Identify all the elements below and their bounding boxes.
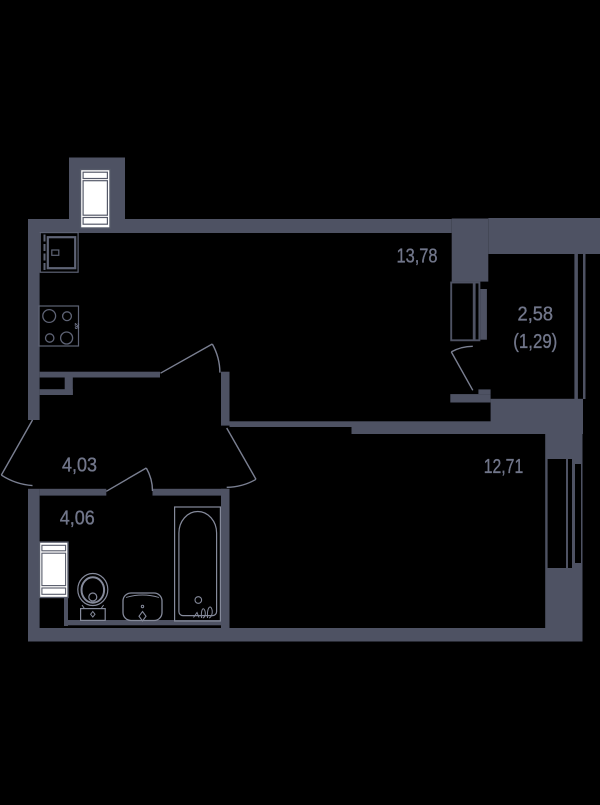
svg-text:13,78: 13,78 <box>397 246 438 268</box>
svg-text:26: 26 <box>73 323 79 329</box>
svg-text:(1,29): (1,29) <box>513 331 557 353</box>
svg-text:12,71: 12,71 <box>484 456 524 478</box>
svg-text:4,03: 4,03 <box>62 455 97 477</box>
svg-text:4,06: 4,06 <box>60 508 95 530</box>
svg-text:2,58: 2,58 <box>518 303 554 325</box>
